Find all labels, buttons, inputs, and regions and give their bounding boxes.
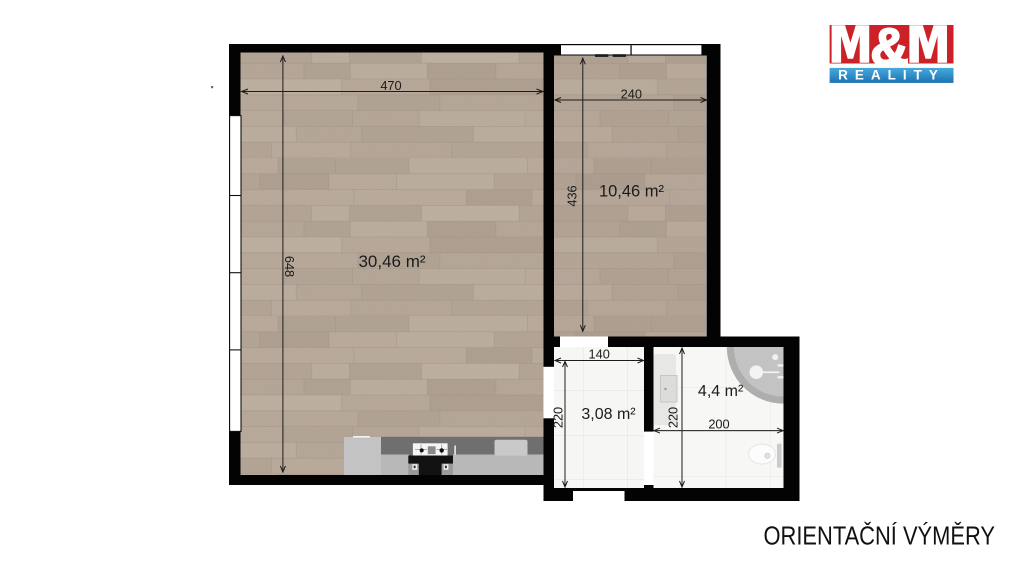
svg-text:REALITY: REALITY xyxy=(838,68,945,83)
svg-text:240: 240 xyxy=(621,86,642,101)
svg-text:470: 470 xyxy=(380,78,401,93)
svg-text:30,46 m²: 30,46 m² xyxy=(358,252,425,271)
svg-text:220: 220 xyxy=(666,407,681,428)
svg-text:140: 140 xyxy=(589,347,610,362)
svg-text:200: 200 xyxy=(708,416,729,431)
svg-text:648: 648 xyxy=(282,256,297,277)
svg-text:220: 220 xyxy=(551,407,566,428)
svg-text:3,08 m²: 3,08 m² xyxy=(581,406,636,423)
svg-text:436: 436 xyxy=(565,185,580,206)
svg-text:4,4 m²: 4,4 m² xyxy=(698,383,744,400)
svg-text:ORIENTAČNÍ VÝMĚRY: ORIENTAČNÍ VÝMĚRY xyxy=(764,522,996,551)
svg-text:10,46 m²: 10,46 m² xyxy=(599,183,665,201)
